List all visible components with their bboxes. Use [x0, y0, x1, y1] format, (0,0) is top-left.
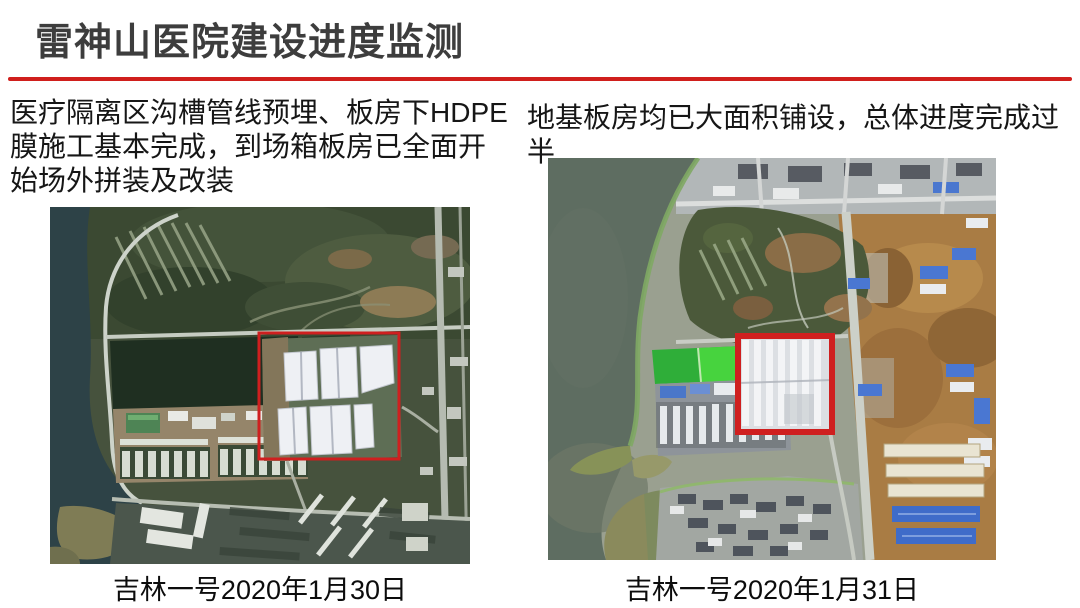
slide: 雷神山医院建设进度监测 医疗隔离区沟槽管线预埋、板房下HDPE 膜施工基本完成，…	[0, 0, 1080, 608]
page-title: 雷神山医院建设进度监测	[35, 11, 464, 66]
satellite-image-right	[548, 158, 996, 560]
right-caption: 吉林一号2020年1月31日	[548, 568, 996, 607]
description-line: 医疗隔离区沟槽管线预埋、板房下HDPE	[10, 96, 522, 130]
left-description: 医疗隔离区沟槽管线预埋、板房下HDPE 膜施工基本完成，到场箱板房已全面开 始场…	[10, 96, 522, 198]
construction-site	[738, 336, 832, 432]
satellite-image-left	[50, 207, 470, 564]
title-divider	[8, 77, 1072, 81]
residential-area	[656, 476, 863, 560]
green-field	[652, 346, 744, 384]
description-line: 膜施工基本完成，到场箱板房已全面开	[10, 130, 522, 164]
satellite-scene-jan31	[548, 158, 996, 560]
left-caption: 吉林一号2020年1月30日	[50, 568, 470, 607]
description-line: 始场外拼装及改装	[10, 164, 522, 198]
satellite-scene-jan30	[50, 207, 470, 564]
